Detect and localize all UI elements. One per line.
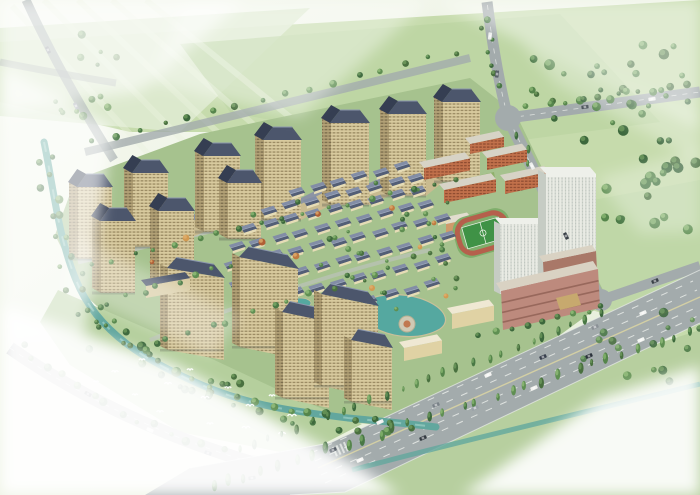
tree-highlight [610, 120, 613, 123]
tree-highlight [432, 277, 434, 279]
tree-highlight [301, 212, 303, 214]
tree-highlight [285, 300, 287, 302]
tower-side-facade [195, 151, 204, 232]
tree-highlight [403, 61, 407, 65]
tree-highlight [590, 359, 592, 363]
tree-highlight [523, 103, 526, 106]
tree-highlight [455, 52, 458, 55]
tree-highlight [251, 309, 254, 312]
tree-highlight [423, 211, 426, 214]
tree-highlight [620, 352, 622, 356]
tree-highlight [583, 315, 586, 320]
tree-highlight [540, 319, 543, 322]
tree-highlight [672, 336, 674, 340]
tree-highlight [609, 337, 613, 341]
tree-highlight [651, 367, 654, 370]
tree-highlight [178, 280, 181, 283]
tree-highlight [369, 285, 372, 288]
tree-highlight [406, 419, 408, 423]
tree-highlight [332, 286, 335, 289]
tree-highlight [511, 386, 514, 392]
bird [269, 395, 275, 396]
tree-highlight [172, 242, 175, 245]
tree-highlight [138, 128, 141, 131]
tree-highlight [295, 425, 298, 430]
tree-highlight [666, 325, 669, 328]
tree-highlight [347, 441, 350, 447]
tree-highlight [433, 235, 435, 237]
tree-highlight [600, 309, 602, 314]
tree-highlight [569, 322, 571, 325]
tree-highlight [400, 227, 403, 230]
white-slab-roof [495, 218, 544, 224]
tree-highlight [113, 133, 117, 137]
tree-highlight [134, 252, 136, 254]
tree-highlight [464, 403, 466, 407]
tree-highlight [440, 243, 443, 246]
tree-highlight [155, 341, 159, 345]
tree-highlight [603, 353, 606, 359]
bird [187, 369, 193, 370]
tree-highlight [440, 368, 443, 373]
tree-highlight [616, 216, 621, 221]
car [488, 32, 492, 40]
tower-side-facade [219, 178, 228, 239]
tree-highlight [363, 279, 365, 281]
tree-highlight [259, 239, 263, 243]
tree-highlight [394, 307, 397, 310]
tree-highlight [342, 407, 344, 412]
tree-highlight [386, 266, 388, 268]
tree-highlight [580, 136, 585, 141]
tree-highlight [415, 380, 418, 385]
tree-highlight [563, 101, 565, 103]
tree-highlight [390, 205, 393, 208]
tree-highlight [472, 399, 474, 404]
tree-highlight [214, 230, 217, 233]
tree-highlight [522, 382, 524, 387]
white-tower-roof [540, 167, 596, 174]
tree-highlight [336, 427, 340, 431]
tree-highlight [388, 191, 391, 194]
tree-highlight [510, 327, 513, 330]
scene-svg [0, 0, 700, 495]
tree-highlight [319, 263, 321, 265]
tree-highlight [444, 294, 447, 297]
tree-highlight [428, 412, 431, 417]
tree-highlight [351, 275, 354, 278]
tree-highlight [690, 318, 693, 321]
tree-highlight [193, 272, 197, 276]
tree-highlight [579, 363, 582, 369]
tree-highlight [211, 108, 214, 111]
tree-highlight [198, 236, 201, 239]
tree-highlight [346, 246, 349, 249]
tree-highlight [688, 327, 690, 332]
tree-highlight [533, 339, 535, 342]
tree-highlight [370, 196, 374, 200]
tree-highlight [304, 409, 308, 413]
tree-highlight [432, 221, 435, 224]
tree-highlight [539, 378, 542, 384]
tree-highlight [555, 369, 558, 375]
tree-highlight [382, 291, 385, 294]
tree-highlight [581, 356, 585, 360]
tree-highlight [412, 186, 416, 190]
tree-highlight [355, 428, 359, 432]
tree-highlight [486, 50, 488, 52]
tree-highlight [95, 320, 98, 323]
tree-highlight [588, 310, 590, 312]
tree-highlight [660, 308, 665, 313]
tree-highlight [260, 221, 263, 224]
tree-highlight [326, 412, 328, 417]
tree-highlight [290, 421, 293, 424]
tree-highlight [353, 417, 357, 421]
tree-highlight [577, 97, 582, 102]
tree-highlight [454, 363, 457, 369]
tree-highlight [440, 247, 443, 250]
tree-highlight [418, 245, 421, 248]
tree-highlight [454, 276, 457, 279]
plaza-center [403, 320, 410, 327]
tree-highlight [104, 324, 106, 326]
tree-highlight [490, 64, 492, 66]
tree-highlight [385, 392, 388, 397]
tree-highlight [444, 261, 447, 264]
tree-highlight [489, 355, 491, 360]
tree-highlight [427, 222, 430, 225]
tree-highlight [491, 71, 494, 74]
intersection-pad [495, 105, 521, 131]
tree-highlight [479, 26, 482, 29]
tree-highlight [433, 183, 435, 185]
tree-highlight [105, 104, 109, 108]
tree-highlight [600, 329, 604, 333]
tree-highlight [602, 214, 606, 218]
tree-highlight [552, 115, 556, 119]
tree-highlight [454, 286, 456, 288]
tree-highlight [659, 366, 664, 371]
tower-side-facade [322, 118, 331, 205]
tree-highlight [316, 211, 319, 214]
tree-highlight [555, 314, 558, 317]
tree-highlight [163, 336, 166, 339]
white-tower-parapet [546, 174, 596, 177]
tree-highlight [378, 69, 381, 72]
car-roof [583, 106, 586, 109]
tree-highlight [346, 203, 348, 205]
tree-highlight [220, 381, 223, 384]
tree-highlight [374, 181, 377, 184]
aerial-masterplan-rendering [0, 0, 700, 495]
tree-highlight [454, 177, 457, 180]
tree-highlight [357, 72, 360, 75]
tree-highlight [138, 342, 143, 347]
tree-highlight [684, 345, 688, 349]
tree-highlight [143, 347, 147, 351]
car [495, 70, 499, 78]
tower-side-facade [380, 109, 389, 196]
tree-highlight [402, 387, 404, 390]
tree-highlight [411, 254, 414, 257]
tree-highlight [372, 272, 375, 275]
tree-highlight [236, 226, 240, 230]
tree-highlight [515, 132, 517, 136]
tree-highlight [380, 291, 382, 293]
tree-highlight [147, 352, 150, 355]
tree-highlight [312, 417, 314, 421]
car-roof [496, 73, 499, 76]
tree-highlight [225, 382, 228, 385]
tree-highlight [150, 260, 152, 262]
slab-side-facade [314, 290, 322, 386]
tree-highlight [624, 372, 629, 377]
tree-highlight [122, 341, 125, 344]
tree-highlight [409, 425, 413, 429]
tree-highlight [112, 319, 115, 322]
tree-highlight [380, 431, 383, 437]
tree-highlight [296, 199, 299, 202]
tree-highlight [164, 121, 166, 123]
tree-highlight [636, 344, 639, 349]
tree-highlight [596, 337, 600, 341]
tree-highlight [352, 403, 354, 408]
tree-highlight [347, 230, 349, 232]
tree-highlight [660, 338, 663, 344]
tree-highlight [446, 201, 448, 203]
tree-highlight [428, 251, 430, 253]
tree-highlight [231, 103, 235, 107]
tree-highlight [327, 206, 329, 208]
tree-highlight [123, 329, 127, 333]
tree-highlight [128, 343, 131, 346]
tree-highlight [345, 273, 348, 276]
tree-highlight [427, 375, 429, 379]
tree-highlight [273, 302, 277, 306]
tree-highlight [615, 345, 619, 349]
tree-highlight [231, 374, 234, 377]
tree-highlight [540, 333, 543, 339]
tree-highlight [357, 251, 359, 253]
tree-highlight [372, 416, 376, 420]
tree-highlight [639, 155, 644, 160]
tree-highlight [306, 290, 310, 294]
tree-highlight [236, 394, 239, 397]
tree-highlight [293, 253, 297, 257]
tree-highlight [517, 344, 519, 348]
tree-highlight [405, 212, 408, 215]
tree-highlight [650, 340, 654, 344]
tree-highlight [499, 351, 501, 355]
tree-highlight [237, 380, 241, 384]
slab-side-facade [275, 308, 283, 398]
tree-highlight [251, 212, 254, 215]
tree-highlight [426, 55, 428, 57]
tower-side-facade [150, 206, 159, 285]
tree-highlight [497, 83, 500, 86]
tree-highlight [598, 303, 601, 306]
tree-highlight [525, 323, 529, 327]
tree-highlight [367, 395, 370, 400]
tree-highlight [534, 92, 537, 95]
tree-highlight [440, 409, 442, 414]
tree-highlight [327, 236, 330, 239]
tree-highlight [333, 235, 336, 238]
tree-highlight [96, 325, 99, 328]
slab-side-facade [232, 253, 240, 347]
tree-highlight [271, 404, 275, 408]
tree-highlight [184, 114, 188, 118]
tree-highlight [400, 217, 403, 220]
tree-highlight [151, 248, 153, 250]
tree-highlight [209, 266, 211, 268]
tree-highlight [493, 328, 497, 332]
tree-highlight [548, 101, 552, 105]
tree-highlight [619, 126, 625, 132]
tree-highlight [385, 259, 387, 261]
tree-highlight [280, 217, 283, 220]
tree-highlight [289, 409, 292, 412]
slab-base-shadow [275, 397, 329, 400]
tree-highlight [529, 87, 533, 91]
tree-highlight [384, 427, 389, 432]
tree-highlight [472, 358, 474, 363]
tree-highlight [229, 264, 231, 266]
tree-highlight [557, 327, 560, 332]
tree-highlight [389, 422, 392, 428]
tree-highlight [360, 435, 363, 441]
tree-highlight [476, 333, 479, 336]
tree-highlight [208, 378, 212, 382]
tree-highlight [570, 311, 573, 314]
tree-highlight [183, 235, 187, 239]
car-roof [489, 35, 492, 38]
tree-highlight [280, 416, 284, 420]
slab-side-facade [344, 336, 352, 402]
tree-highlight [496, 394, 498, 398]
tree-highlight [251, 398, 256, 403]
